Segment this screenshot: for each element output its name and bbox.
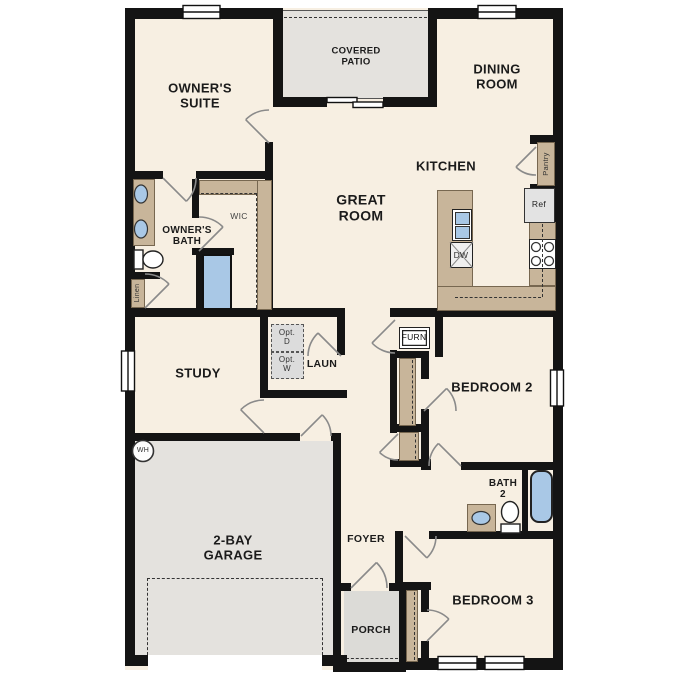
burner [532, 257, 541, 266]
toilet-bowl [143, 251, 163, 268]
laundry-door [308, 333, 341, 356]
owners-suite-door [246, 110, 269, 143]
fixture-label-pantry: Pantry [542, 152, 550, 175]
room-label-kitchen: KITCHEN [416, 160, 476, 175]
fixture-label-opt-washer: Opt. W [279, 356, 295, 374]
symbols-layer [0, 0, 687, 687]
burner [532, 243, 541, 252]
pantry-door [516, 147, 536, 175]
fixture-label-linen: Linen [134, 284, 142, 303]
fixture-label-furnace: FURN [402, 333, 427, 343]
bath-sink [135, 185, 148, 203]
bath2-door [429, 443, 461, 466]
room-label-bedroom2: BEDROOM 2 [451, 381, 532, 396]
fixture-label-water-heater: WH [137, 447, 149, 455]
burner [545, 257, 554, 266]
room-label-bedroom3: BEDROOM 3 [452, 594, 533, 609]
bedroom3-door [405, 536, 436, 558]
room-label-owners-suite: OWNER'S SUITE [168, 81, 232, 110]
owners-bath-door [163, 178, 196, 201]
bath2-sink [472, 512, 490, 525]
toilet-tank [501, 524, 520, 533]
room-label-study: STUDY [175, 367, 221, 382]
sliding-door-panel [353, 102, 383, 108]
fixture-label-dw: DW [454, 251, 469, 261]
room-label-laundry: LAUN [307, 359, 337, 371]
toilet-tank [134, 250, 143, 269]
room-label-foyer: FOYER [347, 534, 385, 546]
study-door [241, 400, 264, 433]
room-label-dining-room: DINING ROOM [473, 62, 520, 91]
toilet-bowl [502, 502, 519, 523]
linen-door [145, 274, 169, 308]
furnace-door [372, 320, 395, 353]
room-label-covered-patio: COVERED PATIO [331, 46, 380, 67]
floor-plan: OWNER'S SUITE COVERED PATIO DINING ROOM … [0, 0, 687, 687]
fixture-label-opt-dryer: Opt. D [279, 329, 295, 347]
room-label-porch: PORCH [351, 625, 390, 637]
room-label-garage: 2-BAY GARAGE [204, 533, 263, 562]
burner [545, 243, 554, 252]
bedroom3-closet-door [427, 610, 449, 641]
garage-entry-door [301, 415, 331, 436]
bath-sink [135, 220, 148, 238]
room-label-great-room: GREAT ROOM [336, 192, 385, 223]
room-label-bath2: BATH 2 [489, 478, 517, 500]
room-label-owners-bath: OWNER'S BATH [162, 225, 211, 247]
room-label-wic: WIC [230, 212, 247, 222]
fixture-label-ref: Ref [532, 200, 546, 210]
front-door [351, 563, 387, 589]
hall-closet-door [380, 434, 398, 460]
